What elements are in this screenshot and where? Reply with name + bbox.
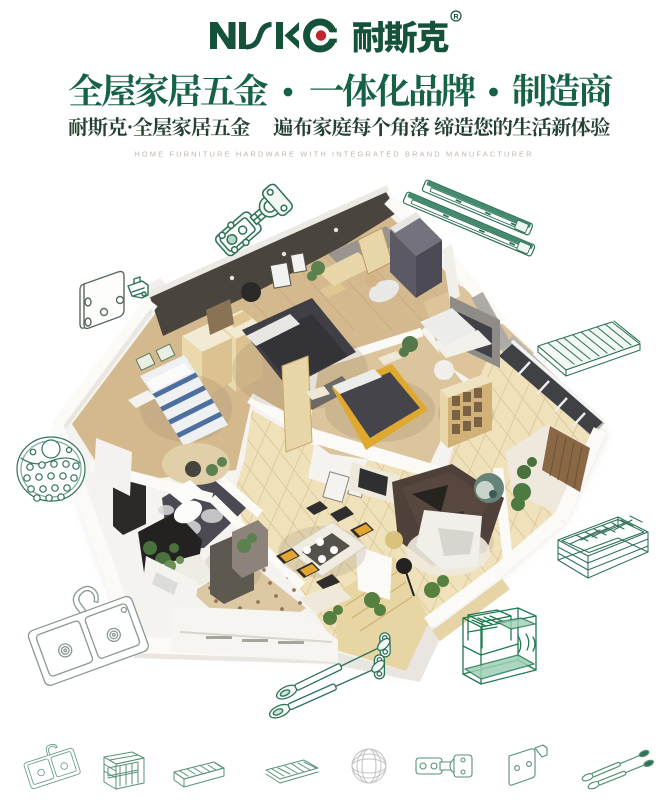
svg-text:R: R: [453, 14, 458, 21]
svg-text:HOME FURNITURE HARDWARE WITH I: HOME FURNITURE HARDWARE WITH INTEGRATED …: [134, 150, 533, 159]
